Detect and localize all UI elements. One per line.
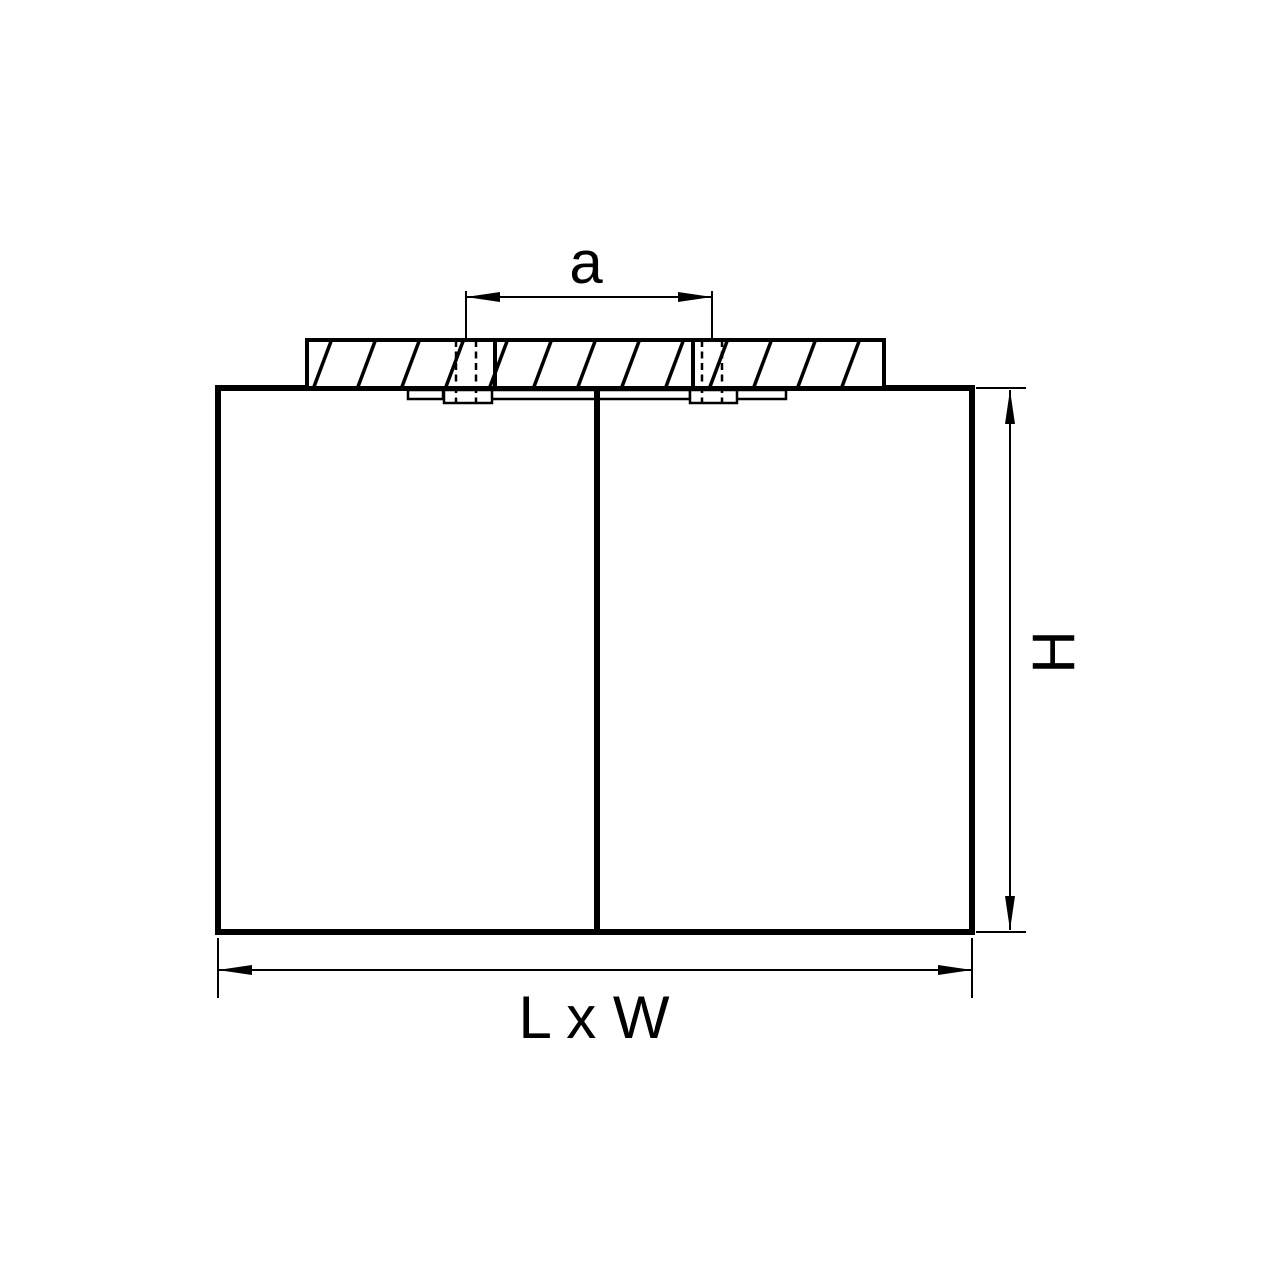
dim-h-arrow-bottom [1005,896,1015,930]
dim-h-arrow-top [1005,390,1015,424]
ceiling-bar [307,340,884,388]
dim-h: H [976,388,1088,932]
dim-a-arrow-right [678,292,712,302]
dim-lw-arrow-left [218,965,252,975]
screw-head-right [690,390,737,403]
dim-a-arrow-left [466,292,500,302]
dim-a-label: a [569,229,603,296]
dim-lw-label: L x W [518,984,669,1051]
luminaire-dimension-diagram: a H L x W [0,0,1280,1280]
dim-h-label: H [1021,630,1088,673]
dim-a: a [466,229,712,341]
screw-head-left [444,390,492,403]
dim-lw-arrow-right [938,965,972,975]
dimension-drawing: a H L x W [0,0,1280,1280]
dim-lw: L x W [218,938,972,1051]
